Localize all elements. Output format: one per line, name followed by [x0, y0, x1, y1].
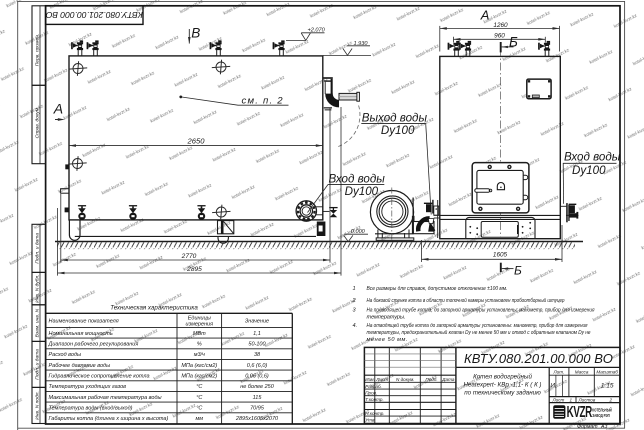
- svg-text:°С: °С: [196, 395, 202, 401]
- svg-text:2650: 2650: [187, 136, 206, 145]
- svg-text:Формат: Формат: [577, 424, 598, 430]
- svg-text:38: 38: [254, 352, 261, 358]
- svg-text:0,06 (0,6): 0,06 (0,6): [245, 374, 269, 380]
- svg-text:Б: Б: [514, 264, 522, 278]
- svg-text:А3: А3: [600, 424, 607, 430]
- svg-text:Габариты котла (длинна х ширин: Габариты котла (длинна х ширина х высота…: [49, 416, 169, 422]
- svg-text:4.: 4.: [353, 323, 358, 329]
- svg-text:2770: 2770: [181, 253, 197, 260]
- svg-text:Максимальная рабочая температу: Максимальная рабочая температура воды: [49, 395, 162, 401]
- svg-text:На отводящей трубе котла до за: На отводящей трубе котла до запорной арм…: [367, 322, 588, 329]
- svg-text:Подп. и дата: Подп. и дата: [35, 233, 41, 264]
- svg-text:см. п. 2: см. п. 2: [242, 95, 284, 106]
- svg-text:1605: 1605: [493, 252, 508, 259]
- svg-text:Вход воды: Вход воды: [564, 151, 621, 164]
- svg-text:°С: °С: [196, 384, 202, 390]
- svg-text:N докум.: N докум.: [396, 377, 415, 382]
- svg-text:Расход воды: Расход воды: [49, 352, 82, 358]
- svg-text:На подводящей трубе котла, д: На подводящей трубе котла, до запорной а…: [367, 307, 595, 314]
- svg-text:И: И: [550, 383, 555, 390]
- svg-text:Подп. и дата: Подп. и дата: [35, 349, 41, 380]
- svg-text:Б: Б: [509, 35, 518, 50]
- svg-text:1: 1: [353, 286, 356, 292]
- svg-text:Масштаб: Масштаб: [596, 369, 618, 374]
- svg-text:В: В: [191, 26, 200, 41]
- svg-text:Dy100: Dy100: [381, 124, 415, 137]
- svg-text:КВТУ.080.201.00.000 ВО: КВТУ.080.201.00.000 ВО: [45, 10, 142, 20]
- svg-text:КОТЕЛЬНЫЙ: КОТЕЛЬНЫЙ: [592, 408, 612, 413]
- svg-text:Котел водогрейный: Котел водогрейный: [473, 373, 532, 380]
- svg-text:не более 250: не более 250: [240, 384, 275, 390]
- svg-text:Температура уходящих газов: Температура уходящих газов: [49, 384, 127, 390]
- svg-text:Температура воды (вход/выход): Температура воды (вход/выход): [49, 406, 133, 412]
- svg-text:Диапазон рабочего регулировани: Диапазон рабочего регулирования: [48, 342, 139, 348]
- svg-text:%: %: [197, 342, 202, 348]
- svg-text:А: А: [480, 8, 490, 23]
- svg-text:Лист: Лист: [552, 398, 565, 403]
- svg-text:Номинальная мощность: Номинальная мощность: [49, 331, 113, 337]
- svg-text:Выход воды: Выход воды: [362, 111, 428, 124]
- svg-text:Разраб.: Разраб.: [365, 384, 382, 389]
- svg-text:измерения: измерения: [186, 322, 214, 328]
- svg-text:А: А: [53, 101, 63, 117]
- svg-text:МПа (кгс/см2): МПа (кгс/см2): [181, 363, 217, 369]
- svg-text:0,6 (6,0): 0,6 (6,0): [247, 363, 268, 369]
- svg-text:Инв. N подл.: Инв. N подл.: [35, 391, 41, 420]
- svg-text:На боковой стенке котла в обла: На боковой стенке котла в области топочн…: [367, 297, 565, 304]
- svg-text:Н.контр.: Н.контр.: [365, 411, 384, 416]
- svg-text:Heatexpert- КВр -1,1- К ( К ): Heatexpert- КВр -1,1- К ( К ): [464, 382, 542, 389]
- svg-text:KVZR: KVZR: [567, 403, 593, 421]
- svg-text:Значение: Значение: [245, 319, 269, 325]
- svg-text:Вход воды: Вход воды: [329, 172, 386, 185]
- svg-text:Наименование показателя: Наименование показателя: [49, 319, 119, 325]
- svg-text:Единицы: Единицы: [188, 315, 211, 321]
- svg-text:температуры, предохранительный: температуры, предохранительный клапан Dу…: [367, 329, 591, 336]
- svg-text:1,1: 1,1: [253, 331, 261, 337]
- svg-text:Подп.: Подп.: [425, 377, 437, 382]
- svg-text:Справ. докум.: Справ. докум.: [35, 107, 41, 139]
- svg-text:Лист: Лист: [375, 377, 388, 382]
- svg-text:Все размеры для справок, допус: Все размеры для справок, допустимое откл…: [367, 286, 508, 292]
- svg-text:менее 50 мм.: менее 50 мм.: [367, 337, 408, 343]
- svg-text:МВт: МВт: [193, 331, 206, 337]
- svg-text:2895: 2895: [186, 266, 202, 273]
- svg-text:Дата: Дата: [441, 377, 455, 382]
- svg-text:+2.070: +2.070: [308, 28, 326, 34]
- svg-text:1: 1: [570, 398, 573, 403]
- svg-text:КВТУ.080.201.00.000 ВО: КВТУ.080.201.00.000 ВО: [464, 351, 613, 366]
- svg-text:Взам. инв. N: Взам. инв. N: [35, 308, 41, 337]
- svg-text:Dy100: Dy100: [345, 185, 379, 198]
- svg-text:Т.контр.: Т.контр.: [365, 397, 384, 402]
- svg-text:1.930: 1.930: [354, 41, 369, 47]
- svg-text:°С: °С: [196, 406, 202, 412]
- svg-text:Dy100: Dy100: [572, 164, 606, 177]
- svg-text:2895х1605х2070: 2895х1605х2070: [235, 416, 279, 422]
- svg-text:Утв.: Утв.: [365, 418, 375, 423]
- svg-text:ЗАВОД РЭП: ЗАВОД РЭП: [592, 413, 610, 418]
- svg-text:Техническая характеристика: Техническая характеристика: [110, 305, 198, 312]
- svg-text:Лит.: Лит.: [553, 369, 565, 374]
- svg-text:115: 115: [253, 395, 263, 401]
- svg-text:1260: 1260: [493, 22, 508, 29]
- svg-text:Перв. примен.: Перв. примен.: [35, 34, 41, 67]
- svg-text:70/95: 70/95: [250, 406, 265, 412]
- svg-text:0.000: 0.000: [351, 229, 366, 235]
- svg-text:Инв. N дубл.: Инв. N дубл.: [35, 274, 41, 302]
- svg-text:1:15: 1:15: [601, 383, 614, 390]
- svg-text:Рабочее давление воды: Рабочее давление воды: [49, 363, 111, 369]
- svg-text:температуры.: температуры.: [367, 314, 406, 320]
- svg-text:Изм.: Изм.: [365, 377, 375, 382]
- svg-text:2: 2: [609, 398, 613, 403]
- svg-text:по техническому заданию: по техническому заданию: [464, 390, 541, 397]
- svg-text:Пров.: Пров.: [365, 391, 377, 396]
- svg-text:Масса: Масса: [575, 369, 589, 374]
- svg-text:МПа (кгс/см2): МПа (кгс/см2): [181, 374, 217, 380]
- svg-text:Гидравлическое сопротивление к: Гидравлическое сопротивление котла: [49, 374, 150, 380]
- svg-text:Листов: Листов: [578, 398, 596, 403]
- svg-text:50-100: 50-100: [248, 342, 266, 348]
- svg-text:960: 960: [494, 33, 505, 40]
- svg-text:мм: мм: [196, 416, 204, 422]
- svg-text:м3/ч: м3/ч: [194, 352, 205, 358]
